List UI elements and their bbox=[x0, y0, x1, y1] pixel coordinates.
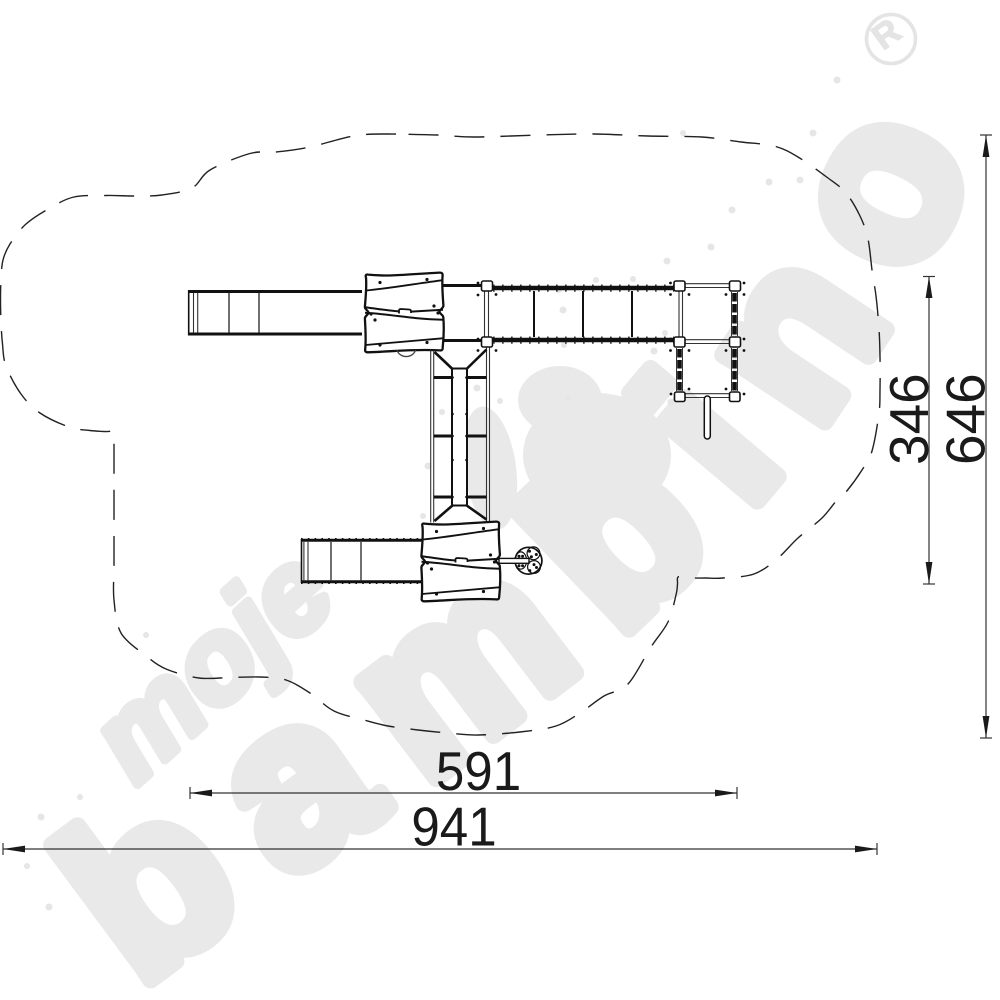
svg-text:346: 346 bbox=[878, 373, 940, 465]
svg-text:646: 646 bbox=[935, 373, 997, 465]
svg-text:591: 591 bbox=[436, 741, 521, 802]
svg-text:941: 941 bbox=[411, 797, 496, 858]
